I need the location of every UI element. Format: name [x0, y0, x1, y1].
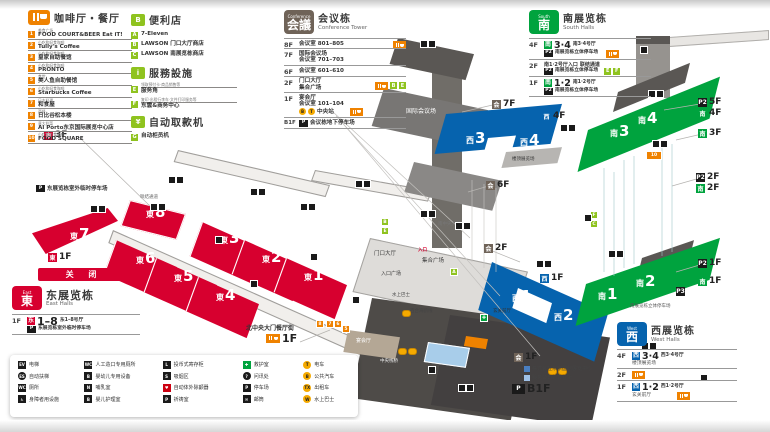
west-halls-legend: West 西 西展览栋 West Halls 4F 西3·4西3·4号厅 楼顶展…: [617, 322, 765, 402]
store-item: CLAWSON 南展览栋商店: [131, 50, 237, 60]
water-bus-label: 水上巴士: [392, 292, 410, 298]
conference-row-2f: 2F 门口大厅 集合广场 B E: [284, 76, 406, 93]
hall-label: 東7: [70, 228, 89, 242]
south-row-2f: 2F 南1·2号厅入口联结通道 P2南展览栋立体停车场 E F: [529, 59, 651, 76]
hall-label: 東4: [216, 289, 235, 303]
amenity-icon: [98, 205, 106, 213]
conference-row-7f: 7F 国际会议场 会议室 701–703: [284, 48, 406, 65]
floor-marker-p2-1f: P21F: [698, 258, 721, 268]
parking-icon: P2: [544, 68, 553, 75]
amenity-icon: [90, 205, 98, 213]
restaurant-chip-5: 5: [342, 325, 350, 333]
bus-icon: B: [299, 108, 306, 115]
floor-marker-p3: P3: [676, 287, 687, 296]
conference-legend: Conference 会議 会议栋 Conference Tower 8F 会议…: [284, 10, 406, 129]
intl-hall-label: 国际会议场: [406, 106, 436, 115]
train-icon: T: [308, 108, 315, 115]
floor-marker-south-1f: 南1F: [698, 276, 721, 286]
service-e-chip: E: [604, 68, 611, 75]
roof-exhibit-label: 楼顶展览场: [512, 156, 535, 162]
store-item: A7-Eleven: [131, 30, 237, 40]
service-e-chip: E: [399, 82, 406, 89]
location-chip-e: E: [381, 227, 389, 235]
entrance-plaza-label: 入口广场: [381, 270, 401, 277]
parking-icon: P2: [544, 50, 553, 57]
hall-label: 東5: [174, 270, 193, 284]
floor-marker-conf-6f: 会6F: [486, 180, 509, 190]
floor-marker-west-4f: 西4F: [542, 111, 565, 121]
hall-label: 南2: [636, 275, 655, 289]
east-badge: East 東: [12, 286, 42, 310]
hall-label: 東1: [304, 269, 323, 283]
hall-label: 西1: [512, 290, 531, 304]
entrance-hall-label: 门口大厅: [374, 249, 396, 257]
floor-marker-conf-2f: 会2F: [484, 243, 507, 253]
floor-marker-p2-5f: P25F: [698, 97, 721, 107]
amenity-icon: [420, 40, 428, 48]
floor-marker-east-1f: 東1F: [48, 252, 71, 262]
yurikamome-station-icon: [402, 310, 411, 317]
foyer-label: 玄关前厅: [493, 308, 511, 314]
food-legend-item: 7日本料理和食屋: [28, 98, 132, 110]
south-row-1f: 1F 南1·2南1·2号厅 P2南展览栋立体停车场: [529, 76, 651, 97]
entrance-label: 入口: [418, 247, 427, 253]
restaurant-icon: [375, 82, 388, 90]
amenity-icon: [308, 203, 316, 211]
amenity-icon: [363, 180, 371, 188]
restaurant-chip-8: 8: [316, 320, 324, 328]
venue-floor-map: 東7 東8 東6 東5 東4 東3 東2 東1 西3 西4 西1 西2 南3 南…: [0, 0, 770, 432]
amenity-icon: [660, 140, 668, 148]
west-row-2f: 2F: [617, 368, 737, 380]
food-legend-item: 1美食广场FOOD COURT&BEER Eat iT!: [28, 28, 132, 40]
east-row-1f: 1F 东1–8东1–8号厅 P东展览栋室外临时停车场: [12, 314, 140, 335]
floor-marker-conf-1f: 会1F: [514, 352, 537, 362]
restaurant-chip-7: 7: [326, 320, 334, 328]
south-row-4f: 4F 南3·4南3·4号厅 P2南展览栋立体停车场: [529, 38, 651, 59]
amenity-icon: [656, 90, 664, 98]
hall-label: 西4: [520, 134, 539, 148]
east-outdoor-parking-label: P东展览栋室外临时停车场: [36, 184, 108, 192]
restaurant-street-marker: 1F: [266, 332, 297, 345]
east-halls-legend: 关 闭 East 東 东展览栋 East Halls 1F 东1–8东1–8号厅…: [12, 268, 140, 335]
restaurant-icon: [632, 371, 645, 379]
amenity-icon: [463, 222, 471, 230]
conference-row-6f: 6F 会议室 601–610: [284, 65, 406, 75]
store-b-chip: B: [390, 82, 397, 89]
amenity-icon: [466, 384, 474, 392]
west-row-1f: 1F 西1·2西1·2号厅 玄关前厅: [617, 380, 737, 402]
hall-label: 南4: [638, 112, 657, 126]
banquet-label: 宴会厅: [356, 337, 371, 344]
amenity-icon: [300, 203, 308, 211]
floor-marker-south-2f: 南2F: [696, 183, 719, 193]
atm-item: G自动柜员机: [131, 132, 237, 142]
food-legend-item: 9意大利菜Al Porto东京国际展览中心店: [28, 121, 132, 133]
building-note-office: 服务公司的营业所: [524, 374, 572, 381]
floor-marker-west-1f: 西1F: [540, 273, 563, 283]
conference-row-8f: 8F 会议室 801–805: [284, 38, 406, 48]
office-chip: [524, 375, 530, 381]
restaurant-icon: [266, 334, 280, 343]
service-desk-icon: i: [131, 67, 145, 79]
east-title: 东展览栋 East Halls: [46, 290, 94, 307]
meeting-plaza-label: 集合广场: [422, 256, 444, 264]
restaurant-chip-6: 6: [334, 320, 342, 328]
south-halls-legend: South 南 南展览栋 South Halls 4F 南3·4南3·4号厅 P…: [529, 10, 651, 97]
company-chip: [524, 366, 530, 372]
food-legend: 咖啡厅・餐厅 1美食广场FOOD COURT&BEER Eat iT! 2小吃和…: [28, 10, 132, 144]
hall-label: 西2: [554, 309, 573, 323]
food-legend-item: 8西餐日比谷松本楼: [28, 109, 132, 121]
conference-row-1f: 1F 宴会厅 会议室 101–104 B T 中央站: [284, 92, 406, 117]
amenity-icon: [428, 366, 436, 374]
amenity-icon: [458, 384, 466, 392]
amenity-icon: [150, 203, 158, 211]
restaurant-icon: [350, 108, 363, 116]
hall-label: 東2: [262, 251, 281, 265]
parking-icon: P: [36, 185, 45, 192]
amenity-icon: [215, 236, 223, 244]
food-legend-item: 3小吃和轻食咖啡皇家自助餐馆: [28, 51, 132, 63]
service-f-chip: F: [613, 68, 620, 75]
hall-label: 南1: [598, 288, 617, 302]
amenity-icon: [428, 40, 436, 48]
building-note-company: 株式会社东京国际展览中心: [524, 365, 592, 372]
hall-label: 東6: [136, 252, 155, 266]
amenity-icon: [352, 296, 360, 304]
conference-row-b1f: B1F P会议栋地下停车场: [284, 117, 406, 129]
restaurant-icon: [28, 10, 50, 25]
west-row-4f: 4F 西3·4西3·4号厅 楼顶展览场: [617, 349, 737, 368]
location-chip-b: B: [381, 218, 389, 226]
amenity-icon: [428, 210, 436, 218]
amenity-icon: [250, 280, 258, 288]
food-legend-item: 6小吃和轻食咖啡Starbucks Coffee: [28, 86, 132, 98]
hall-label: 西3: [466, 132, 485, 146]
restaurant-icon: [677, 392, 690, 400]
south-title: 南展览栋 South Halls: [563, 14, 607, 31]
store-item: BLAWSON 门口大厅商店: [131, 40, 237, 50]
hall-label: 南3: [610, 125, 629, 139]
amenity-icon: [616, 250, 624, 258]
food-legend-item: 4小吃和轻食咖啡PRONTO: [28, 63, 132, 75]
amenity-icon: [560, 124, 568, 132]
parking-icon: P: [299, 120, 308, 127]
amenity-icon: [355, 180, 363, 188]
amenity-icon: [158, 203, 166, 211]
amenity-icon: [250, 188, 258, 196]
floor-marker-south-3f: 南3F: [698, 128, 721, 138]
conference-badge: Conference 会議: [284, 10, 314, 34]
west-badge: West 西: [617, 322, 647, 346]
south-badge: South 南: [529, 10, 559, 34]
food-legend-title: 咖啡厅・餐厅: [54, 10, 120, 25]
parking-icon: P2: [544, 88, 553, 95]
yurikamome-label: 百合海鸥线: [410, 308, 433, 314]
south-parking-label: 南展览栋立体停车场: [630, 303, 671, 309]
closed-banner: 关 闭: [38, 268, 130, 281]
floor-marker-p2-2f: P22F: [696, 172, 719, 182]
parking-icon: P: [27, 326, 36, 333]
amenity-icon: [544, 260, 552, 268]
west-title: 西展览栋 West Halls: [651, 326, 695, 343]
amenity-icon: [652, 140, 660, 148]
amenity-icon: [608, 250, 616, 258]
conference-title: 会议栋 Conference Tower: [318, 14, 367, 31]
amenity-icon: [455, 222, 463, 230]
amenity-icon: [168, 176, 176, 184]
amenity-icon: [584, 214, 592, 222]
service-item: F 复印·出租行李车·文件打印服务等 东雲&商务中心: [131, 98, 237, 110]
bus-stop-icon: [398, 348, 407, 355]
central-pier-label: 中央栈桥: [380, 358, 398, 364]
floor-marker-south-4f: 南4F: [698, 108, 721, 118]
location-chip-a: A: [450, 268, 458, 276]
taxi-stand-icon: [408, 348, 417, 355]
first-aid-icon: ✚: [480, 314, 488, 322]
amenity-icon: [258, 188, 266, 196]
atm-icon: ¥: [131, 116, 145, 128]
amenity-icon: [176, 176, 184, 184]
food-legend-item: 2小吃和轻食咖啡Tully's Coffee: [28, 40, 132, 52]
amenity-icon: [310, 253, 318, 261]
convenience-store-icon: B: [131, 14, 145, 26]
amenity-icon: [568, 124, 576, 132]
restaurant-chip-10: 10: [646, 151, 662, 160]
store-service-column: B 便利店 A7-Eleven BLAWSON 门口大厅商店 CLAWSON 南…: [131, 12, 237, 142]
floor-marker-b1f: PB1F: [512, 382, 551, 395]
service-item: E 领取预付卡·商品销售等 服务角: [131, 83, 237, 95]
food-legend-item: 5食堂美人鱼自助餐馆: [28, 74, 132, 86]
amenity-icon: [536, 260, 544, 268]
restaurant-icon: [606, 50, 619, 58]
food-legend-item: 10小吃和轻食咖啡FOOD SQUARE: [28, 132, 132, 144]
amenity-icon: [420, 210, 428, 218]
floor-marker-conf-7f: 会7F: [492, 99, 515, 109]
